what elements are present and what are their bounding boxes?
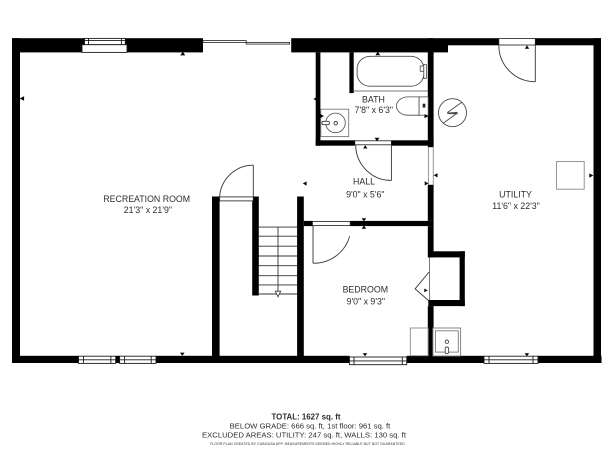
svg-text:TOTAL: 1627 sq. ft: TOTAL: 1627 sq. ft [272,412,341,421]
svg-text:EXCLUDED AREAS: UTILITY: 247 s: EXCLUDED AREAS: UTILITY: 247 sq. ft, WAL… [202,430,407,439]
svg-text:UTILITY: UTILITY [499,190,532,200]
svg-text:21'3" x 21'9": 21'3" x 21'9" [124,205,172,215]
svg-text:BELOW GRADE: 666 sq. ft, 1st f: BELOW GRADE: 666 sq. ft, 1st floor: 961 … [230,421,392,430]
svg-text:RECREATION ROOM: RECREATION ROOM [103,194,190,204]
svg-text:9'0" x 9'3": 9'0" x 9'3" [347,297,385,307]
svg-text:9'0" x 5'6": 9'0" x 5'6" [346,189,384,199]
svg-text:FLOOR PLAN CREATED BY CUBICASA: FLOOR PLAN CREATED BY CUBICASA APP. MEAS… [210,442,406,446]
svg-text:11'6" x 22'3": 11'6" x 22'3" [492,201,540,211]
svg-text:7'8" x 6'3": 7'8" x 6'3" [355,105,393,115]
svg-text:BEDROOM: BEDROOM [343,285,388,295]
svg-text:BATH: BATH [362,95,385,105]
svg-text:HALL: HALL [353,176,375,186]
